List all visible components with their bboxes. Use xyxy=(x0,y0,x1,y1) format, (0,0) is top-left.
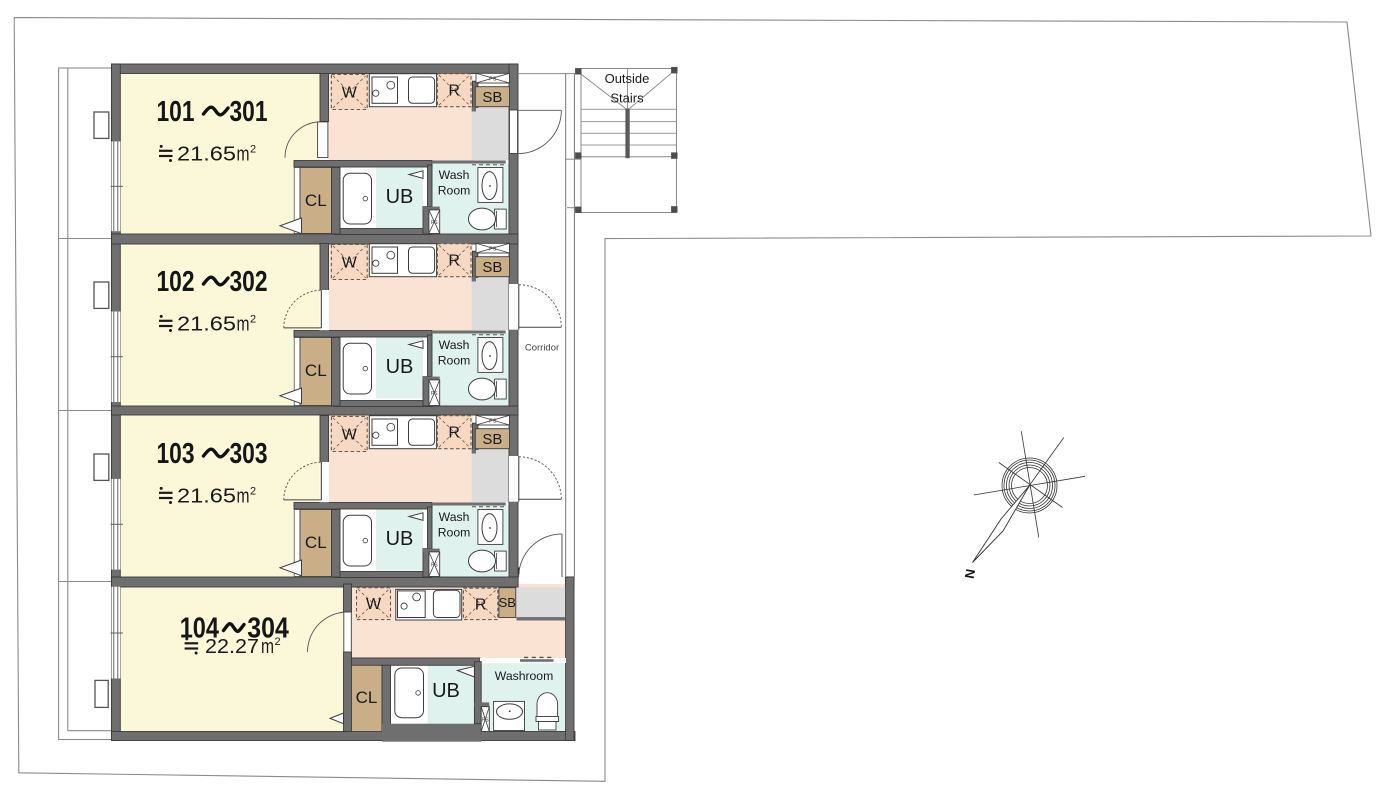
svg-text:PS: PS xyxy=(489,247,497,253)
svg-text:PS: PS xyxy=(431,563,438,569)
svg-text:Washroom: Washroom xyxy=(495,669,553,683)
svg-text:CL: CL xyxy=(356,688,378,707)
svg-text:2: 2 xyxy=(250,314,256,326)
svg-text:CL: CL xyxy=(305,361,327,380)
svg-text:R: R xyxy=(448,425,460,442)
svg-text:m: m xyxy=(261,635,274,658)
svg-text:Corridor: Corridor xyxy=(525,343,559,354)
svg-text:2: 2 xyxy=(250,144,256,156)
svg-text:UB: UB xyxy=(386,528,414,550)
svg-text:SB: SB xyxy=(482,431,502,448)
svg-text:103: 103 xyxy=(157,438,195,470)
svg-text:SB: SB xyxy=(482,89,502,106)
svg-text:PS: PS xyxy=(431,391,438,397)
svg-text:21.65: 21.65 xyxy=(177,485,236,508)
svg-text:W: W xyxy=(342,254,358,271)
svg-text:R: R xyxy=(448,253,460,270)
svg-text:303: 303 xyxy=(230,438,268,470)
svg-text:Room: Room xyxy=(438,354,471,368)
svg-text:PS: PS xyxy=(489,419,497,425)
svg-text:2: 2 xyxy=(250,486,256,498)
svg-text:101: 101 xyxy=(157,96,195,128)
svg-text:Wash: Wash xyxy=(439,510,470,524)
svg-text:21.65: 21.65 xyxy=(177,143,236,166)
svg-text:PS: PS xyxy=(489,77,497,83)
svg-text:R: R xyxy=(475,596,487,613)
svg-text:21.65: 21.65 xyxy=(177,313,236,336)
svg-text:UB: UB xyxy=(432,680,460,702)
svg-text:CL: CL xyxy=(305,191,327,210)
svg-text:m: m xyxy=(237,485,250,508)
svg-text:UB: UB xyxy=(386,356,414,378)
svg-text:CL: CL xyxy=(305,533,327,552)
svg-text:W: W xyxy=(342,426,358,443)
svg-text:Room: Room xyxy=(438,526,471,540)
svg-text:UB: UB xyxy=(386,186,414,208)
svg-text:22.27: 22.27 xyxy=(205,635,259,658)
svg-text:W: W xyxy=(366,596,382,613)
svg-text:m: m xyxy=(237,143,250,166)
svg-text:Wash: Wash xyxy=(439,168,470,182)
svg-text:Outside: Outside xyxy=(605,71,650,86)
svg-text:PS: PS xyxy=(431,220,438,226)
svg-text:Stairs: Stairs xyxy=(610,91,644,106)
svg-text:SB: SB xyxy=(499,595,516,610)
svg-text:2: 2 xyxy=(275,636,281,648)
svg-text:PS: PS xyxy=(482,718,489,724)
svg-text:R: R xyxy=(448,83,460,100)
svg-text:m: m xyxy=(237,313,250,336)
svg-text:301: 301 xyxy=(230,96,268,128)
svg-text:102: 102 xyxy=(157,266,195,298)
svg-text:302: 302 xyxy=(230,266,268,298)
svg-text:Room: Room xyxy=(438,184,471,198)
svg-text:Wash: Wash xyxy=(439,338,470,352)
svg-text:SB: SB xyxy=(482,259,502,276)
svg-text:W: W xyxy=(342,84,358,101)
